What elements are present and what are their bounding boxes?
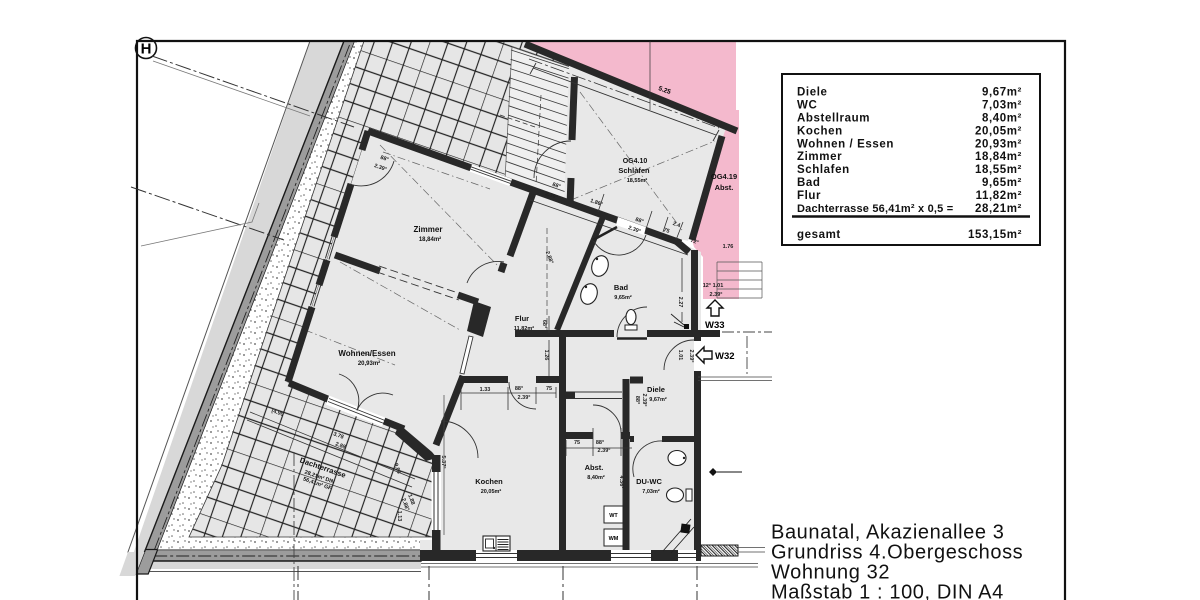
svg-text:1.13: 1.13 — [396, 511, 402, 522]
svg-text:88°: 88° — [596, 440, 604, 446]
svg-text:9,67m²: 9,67m² — [982, 87, 1022, 99]
svg-text:2.39°: 2.39° — [518, 395, 531, 401]
svg-text:WM: WM — [609, 536, 619, 542]
svg-text:20,05m²: 20,05m² — [975, 125, 1022, 137]
svg-text:20,05m²: 20,05m² — [481, 488, 502, 495]
svg-text:18,84m²: 18,84m² — [419, 236, 441, 243]
svg-text:8,40m²: 8,40m² — [982, 112, 1022, 124]
svg-text:11,82m²: 11,82m² — [514, 325, 534, 332]
svg-text:2.39°: 2.39° — [598, 448, 611, 454]
svg-text:Zimmer: Zimmer — [797, 151, 842, 163]
svg-text:WC: WC — [797, 100, 817, 112]
svg-text:2.39°: 2.39° — [710, 292, 723, 298]
svg-text:5.37°: 5.37° — [440, 456, 446, 469]
svg-text:WT: WT — [609, 513, 618, 519]
svg-text:H: H — [141, 41, 152, 58]
svg-text:88°: 88° — [634, 396, 640, 404]
svg-text:OG4.10: OG4.10 — [623, 158, 648, 165]
svg-text:Flur: Flur — [515, 314, 529, 323]
svg-text:Abstellraum: Abstellraum — [797, 112, 870, 124]
svg-text:1.76: 1.76 — [723, 244, 734, 250]
svg-text:8,40m²: 8,40m² — [587, 474, 605, 481]
svg-text:Kochen: Kochen — [475, 477, 503, 486]
svg-text:18,84m²: 18,84m² — [975, 151, 1022, 163]
svg-text:1.01: 1.01 — [677, 350, 683, 361]
svg-text:20,93m²: 20,93m² — [975, 138, 1022, 150]
svg-text:7,03m²: 7,03m² — [982, 100, 1022, 112]
svg-text:18,55m²: 18,55m² — [975, 164, 1022, 176]
svg-text:Dachterrasse 56,41m² x 0,5 =: Dachterrasse 56,41m² x 0,5 = — [797, 203, 953, 215]
svg-text:4.36°: 4.36° — [618, 476, 624, 489]
svg-text:Wohnung 32: Wohnung 32 — [771, 562, 890, 584]
svg-text:Zimmer: Zimmer — [414, 225, 443, 234]
svg-text:Bad: Bad — [797, 177, 821, 189]
svg-text:88°: 88° — [515, 386, 523, 392]
svg-text:12° 1.01: 12° 1.01 — [703, 283, 724, 289]
svg-text:DU-WC: DU-WC — [636, 477, 662, 486]
svg-text:W32: W32 — [715, 351, 735, 362]
svg-text:153,15m²: 153,15m² — [968, 229, 1022, 241]
svg-text:2.39°: 2.39° — [688, 350, 694, 363]
svg-text:W33: W33 — [705, 320, 725, 331]
svg-text:OG4.19: OG4.19 — [711, 172, 737, 181]
svg-text:9,67m²: 9,67m² — [649, 396, 667, 403]
svg-text:Diele: Diele — [797, 87, 828, 99]
svg-text:Abst.: Abst. — [585, 463, 604, 472]
svg-text:9,65m²: 9,65m² — [614, 294, 632, 301]
svg-text:Wohnen/Essen: Wohnen/Essen — [338, 349, 395, 358]
svg-text:Kochen: Kochen — [797, 125, 843, 137]
svg-text:Baunatal, Akazienallee 3: Baunatal, Akazienallee 3 — [771, 522, 1004, 544]
svg-text:gesamt: gesamt — [797, 229, 841, 241]
svg-text:2.39°: 2.39° — [641, 394, 647, 407]
svg-text:28,21m²: 28,21m² — [975, 203, 1022, 215]
svg-text:Wohnen / Essen: Wohnen / Essen — [797, 138, 894, 150]
svg-text:7,03m²: 7,03m² — [642, 488, 660, 495]
svg-text:1.26: 1.26 — [543, 350, 549, 361]
svg-text:Maßstab 1 : 100, DIN A4: Maßstab 1 : 100, DIN A4 — [771, 582, 1004, 600]
svg-text:1.33: 1.33 — [480, 387, 491, 393]
svg-text:18,55m²: 18,55m² — [627, 177, 648, 184]
svg-text:Schlafen: Schlafen — [618, 166, 650, 175]
svg-text:Bad: Bad — [614, 283, 629, 292]
svg-text:Abst.: Abst. — [715, 183, 734, 192]
svg-text:Diele: Diele — [647, 385, 665, 394]
svg-text:Grundriss 4.Obergeschoss: Grundriss 4.Obergeschoss — [771, 542, 1023, 564]
svg-text:Flur: Flur — [797, 190, 821, 202]
svg-text:75: 75 — [546, 386, 552, 392]
svg-text:68°: 68° — [541, 320, 547, 328]
svg-text:75: 75 — [574, 440, 580, 446]
svg-text:20,93m²: 20,93m² — [358, 360, 380, 367]
svg-text:9,65m²: 9,65m² — [982, 177, 1022, 189]
svg-text:Schlafen: Schlafen — [797, 164, 850, 176]
svg-text:2.27: 2.27 — [677, 297, 683, 308]
svg-text:11,82m²: 11,82m² — [976, 190, 1022, 202]
